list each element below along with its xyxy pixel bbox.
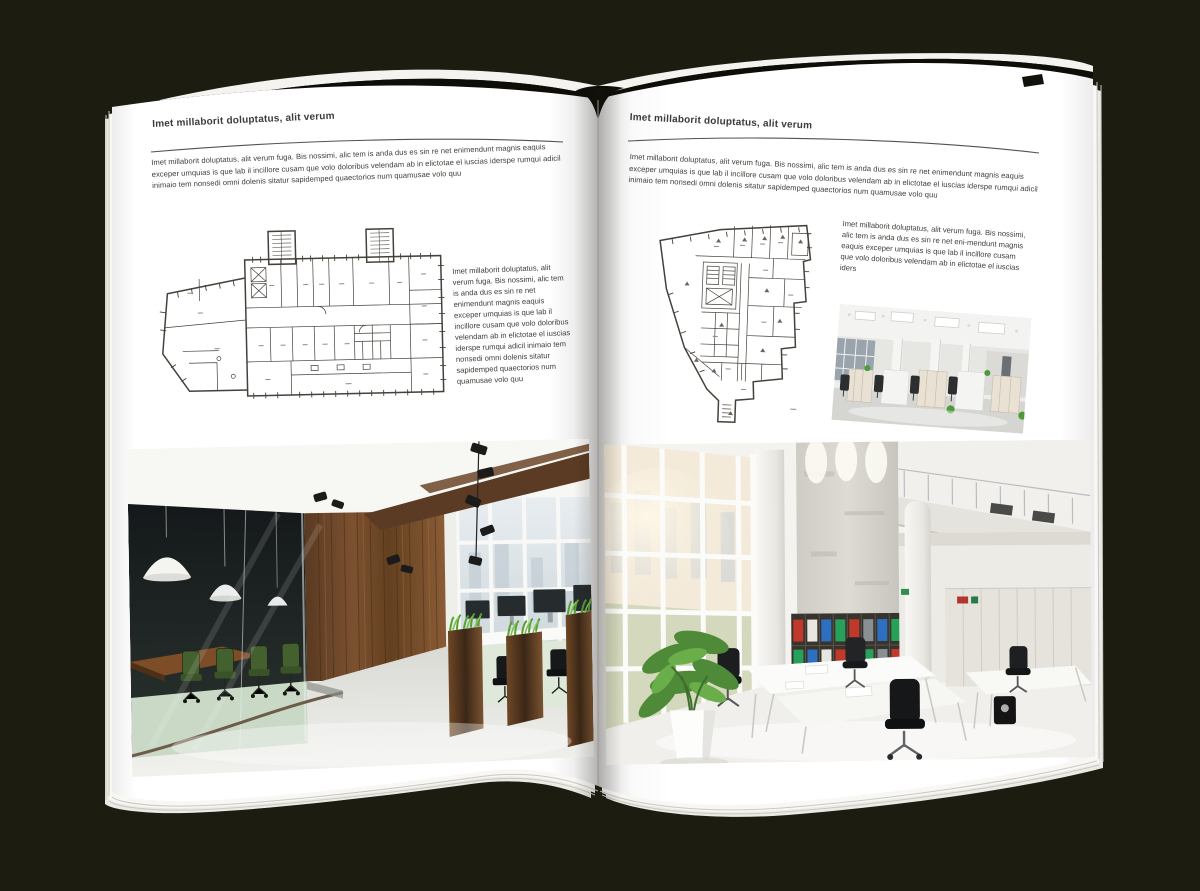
intro-paragraph: Imet millaborit doluptatus, alit verum f… <box>628 151 1041 207</box>
page-title: Imet millaborit doluptatus, alit verum <box>629 112 812 132</box>
floor-plan-drawing <box>640 214 837 429</box>
office-photo-small <box>832 304 1032 434</box>
spine-shadow <box>574 88 622 800</box>
office-photo-atrium <box>604 440 1092 765</box>
caption-paragraph: Imet millaborit doluptatus, alit verum f… <box>840 218 1031 285</box>
magazine-spread-mockup: Imet millaborit doluptatus, alit verum I… <box>0 0 1200 891</box>
